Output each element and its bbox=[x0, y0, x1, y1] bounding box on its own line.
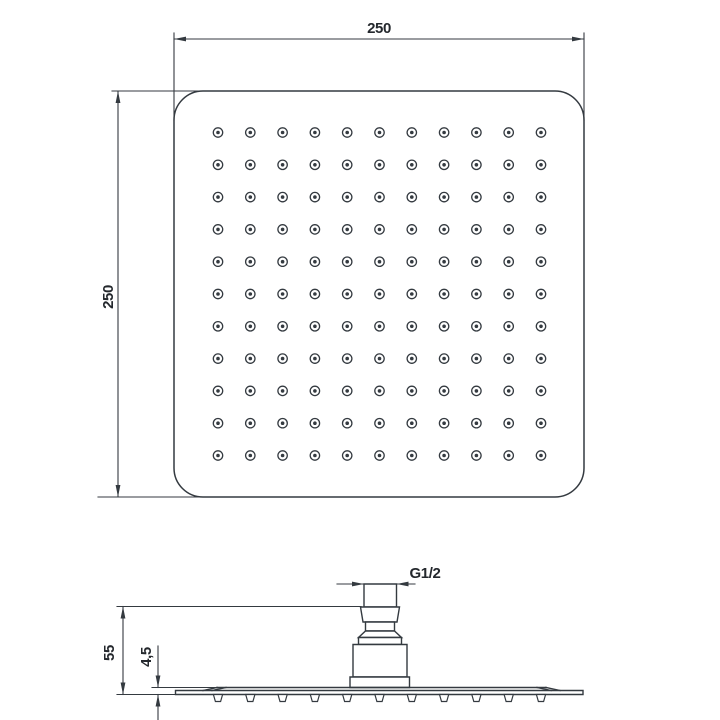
nozzle bbox=[343, 128, 352, 137]
dim-label-thickness: 4,5 bbox=[138, 647, 155, 667]
nozzle bbox=[343, 419, 352, 428]
nozzle-dot bbox=[216, 325, 220, 329]
nozzle bbox=[246, 160, 255, 169]
nozzle-dot bbox=[216, 454, 220, 458]
nozzle-dot bbox=[410, 260, 414, 264]
nozzle-dot bbox=[475, 389, 479, 393]
arrowhead-top bbox=[116, 91, 121, 103]
nozzle bbox=[278, 225, 287, 234]
nozzle-dot bbox=[378, 421, 382, 425]
nozzle bbox=[213, 354, 222, 363]
nozzle-dot bbox=[475, 357, 479, 361]
nozzle-dot bbox=[345, 357, 349, 361]
arrowhead-top bbox=[121, 607, 126, 619]
nozzle bbox=[407, 451, 416, 460]
nozzle bbox=[213, 160, 222, 169]
nozzle bbox=[343, 225, 352, 234]
nozzle bbox=[472, 354, 481, 363]
nozzle-dot bbox=[249, 260, 253, 264]
nozzle-dot bbox=[410, 357, 414, 361]
arrowhead-bottom bbox=[116, 485, 121, 497]
nozzle-dot bbox=[507, 163, 511, 167]
nozzle-dot bbox=[442, 421, 446, 425]
nozzle bbox=[504, 257, 513, 266]
nozzle-dot bbox=[249, 195, 253, 199]
nozzle bbox=[536, 160, 545, 169]
nozzle-dot bbox=[313, 131, 317, 135]
nozzle-dot bbox=[507, 325, 511, 329]
nozzle bbox=[472, 451, 481, 460]
side-nozzle bbox=[472, 695, 481, 702]
nozzle bbox=[375, 354, 384, 363]
nozzle-dot bbox=[345, 292, 349, 296]
nozzle-dot bbox=[475, 228, 479, 232]
nozzle bbox=[375, 160, 384, 169]
arrowhead-right-pointing bbox=[352, 582, 364, 587]
nozzle bbox=[504, 128, 513, 137]
drawing-svg: 250 250 bbox=[0, 0, 720, 720]
nozzle-dot bbox=[475, 260, 479, 264]
nozzle-dot bbox=[313, 357, 317, 361]
nozzle-dot bbox=[378, 389, 382, 393]
nozzle-dot bbox=[442, 292, 446, 296]
nozzle-dot bbox=[378, 325, 382, 329]
nozzle-dot bbox=[345, 228, 349, 232]
side-nozzle bbox=[407, 695, 416, 702]
nozzle-dot bbox=[313, 163, 317, 167]
nozzle bbox=[407, 225, 416, 234]
nozzle bbox=[343, 289, 352, 298]
nozzle bbox=[343, 386, 352, 395]
nozzle-dot bbox=[507, 454, 511, 458]
arrowhead-up bbox=[156, 695, 161, 707]
nozzle-dot bbox=[281, 292, 285, 296]
nozzle bbox=[310, 419, 319, 428]
nozzle-dot bbox=[216, 421, 220, 425]
nozzle bbox=[504, 386, 513, 395]
nozzle bbox=[536, 451, 545, 460]
nozzle bbox=[343, 257, 352, 266]
nozzle bbox=[213, 451, 222, 460]
nozzle-dot bbox=[378, 131, 382, 135]
nozzle-dot bbox=[313, 454, 317, 458]
nozzle-dot bbox=[410, 292, 414, 296]
nozzle-dot bbox=[442, 325, 446, 329]
nozzle bbox=[407, 160, 416, 169]
nozzle-dot bbox=[475, 292, 479, 296]
nozzle-dot bbox=[216, 195, 220, 199]
nozzle bbox=[278, 192, 287, 201]
nozzle-dot bbox=[442, 131, 446, 135]
nozzle bbox=[504, 225, 513, 234]
nozzle-dot bbox=[507, 260, 511, 264]
nozzle-dot bbox=[216, 357, 220, 361]
nozzle bbox=[343, 192, 352, 201]
nozzle-dot bbox=[216, 228, 220, 232]
nozzle bbox=[536, 419, 545, 428]
arrowhead-left-pointing bbox=[397, 582, 409, 587]
nozzle bbox=[278, 289, 287, 298]
nozzle-dot bbox=[216, 260, 220, 264]
side-nozzle bbox=[246, 695, 255, 702]
nozzle-dot bbox=[249, 357, 253, 361]
nozzle bbox=[407, 192, 416, 201]
nozzle-dot bbox=[313, 260, 317, 264]
nozzle-dot bbox=[475, 454, 479, 458]
dim-label-side-height: 55 bbox=[101, 645, 118, 661]
nozzle-dot bbox=[281, 131, 285, 135]
nozzle-dot bbox=[345, 389, 349, 393]
nozzle-dot bbox=[313, 228, 317, 232]
nozzle bbox=[246, 289, 255, 298]
nozzle-dot bbox=[539, 228, 543, 232]
nozzle bbox=[278, 451, 287, 460]
connector-base bbox=[350, 677, 410, 688]
connector-neck bbox=[366, 622, 395, 631]
connector-body bbox=[353, 645, 407, 678]
nozzle bbox=[407, 322, 416, 331]
nozzle bbox=[375, 386, 384, 395]
nozzle-dot bbox=[249, 454, 253, 458]
nozzle-dot bbox=[507, 421, 511, 425]
nozzle bbox=[246, 386, 255, 395]
nozzle bbox=[536, 386, 545, 395]
nozzle-dot bbox=[249, 131, 253, 135]
nozzle-dot bbox=[378, 292, 382, 296]
nozzle bbox=[343, 160, 352, 169]
nozzle-dot bbox=[378, 163, 382, 167]
nozzle-dot bbox=[410, 454, 414, 458]
side-nozzle bbox=[504, 695, 513, 702]
nozzle-dot bbox=[410, 163, 414, 167]
top-view: 250 250 bbox=[98, 20, 584, 497]
nozzle-dot bbox=[539, 260, 543, 264]
nozzle-dot bbox=[507, 131, 511, 135]
nozzle-dot bbox=[442, 357, 446, 361]
nozzle bbox=[310, 192, 319, 201]
nozzle-dot bbox=[378, 454, 382, 458]
nozzle bbox=[439, 225, 448, 234]
arrowhead-right bbox=[572, 37, 584, 42]
nozzle bbox=[213, 322, 222, 331]
nozzle-dot bbox=[345, 260, 349, 264]
nozzle bbox=[472, 386, 481, 395]
nozzle-dot bbox=[345, 421, 349, 425]
nozzle bbox=[407, 386, 416, 395]
nozzle bbox=[310, 451, 319, 460]
nozzle bbox=[504, 354, 513, 363]
nozzle-dot bbox=[378, 228, 382, 232]
connector bbox=[350, 584, 410, 688]
nozzle bbox=[310, 322, 319, 331]
nozzle bbox=[439, 160, 448, 169]
nozzle bbox=[375, 322, 384, 331]
nozzle-dot bbox=[281, 357, 285, 361]
nozzle bbox=[407, 128, 416, 137]
nozzle bbox=[213, 225, 222, 234]
nozzle bbox=[246, 225, 255, 234]
nozzle bbox=[536, 289, 545, 298]
nozzle bbox=[504, 160, 513, 169]
nozzle bbox=[472, 225, 481, 234]
side-nozzle bbox=[375, 695, 384, 702]
nozzle-dot bbox=[313, 292, 317, 296]
nozzle-dot bbox=[410, 325, 414, 329]
nozzle-dot bbox=[539, 163, 543, 167]
nozzle bbox=[343, 322, 352, 331]
nozzle bbox=[375, 451, 384, 460]
nozzle bbox=[310, 386, 319, 395]
nozzle-dot bbox=[281, 454, 285, 458]
nozzle bbox=[246, 128, 255, 137]
nozzle bbox=[343, 451, 352, 460]
side-nozzle bbox=[213, 695, 222, 702]
nozzle-dot bbox=[539, 421, 543, 425]
connector-cone bbox=[361, 607, 400, 622]
side-view: 55 4,5 G1/2 bbox=[101, 565, 583, 720]
nozzle bbox=[439, 128, 448, 137]
nozzle-dot bbox=[475, 163, 479, 167]
nozzle-dot bbox=[281, 163, 285, 167]
side-nozzle bbox=[343, 695, 352, 702]
nozzle-dot bbox=[249, 325, 253, 329]
nozzle bbox=[278, 257, 287, 266]
nozzle bbox=[536, 257, 545, 266]
nozzle bbox=[278, 322, 287, 331]
nozzle bbox=[504, 419, 513, 428]
nozzle-dot bbox=[539, 357, 543, 361]
nozzle-dot bbox=[410, 421, 414, 425]
nozzle bbox=[278, 354, 287, 363]
nozzle bbox=[536, 354, 545, 363]
nozzle-dot bbox=[281, 228, 285, 232]
nozzle-dot bbox=[345, 131, 349, 135]
nozzle bbox=[213, 289, 222, 298]
nozzle-dot bbox=[216, 131, 220, 135]
nozzle bbox=[213, 386, 222, 395]
nozzle-dot bbox=[539, 292, 543, 296]
nozzle-dot bbox=[442, 195, 446, 199]
nozzle bbox=[310, 128, 319, 137]
nozzle bbox=[536, 128, 545, 137]
nozzle bbox=[439, 354, 448, 363]
nozzle-dot bbox=[281, 325, 285, 329]
nozzle bbox=[246, 192, 255, 201]
dim-label-height: 250 bbox=[100, 285, 117, 309]
arrowhead-left bbox=[174, 37, 186, 42]
nozzle bbox=[472, 128, 481, 137]
nozzle bbox=[310, 257, 319, 266]
nozzle-dot bbox=[281, 389, 285, 393]
nozzle-dot bbox=[378, 260, 382, 264]
nozzle bbox=[407, 289, 416, 298]
side-nozzle-row bbox=[213, 695, 545, 702]
nozzle bbox=[310, 289, 319, 298]
nozzle-dot bbox=[410, 389, 414, 393]
nozzle-dot bbox=[281, 195, 285, 199]
side-nozzle bbox=[440, 695, 449, 702]
nozzle-dot bbox=[475, 195, 479, 199]
nozzle-dot bbox=[313, 389, 317, 393]
nozzle bbox=[439, 257, 448, 266]
connector-flare bbox=[359, 631, 402, 638]
nozzle bbox=[407, 419, 416, 428]
nozzle bbox=[439, 289, 448, 298]
nozzle-dot bbox=[378, 195, 382, 199]
nozzle bbox=[472, 257, 481, 266]
plate bbox=[176, 688, 584, 695]
nozzle bbox=[375, 128, 384, 137]
thread-pipe bbox=[364, 584, 397, 607]
nozzle bbox=[246, 451, 255, 460]
nozzle bbox=[246, 257, 255, 266]
nozzle-dot bbox=[442, 454, 446, 458]
side-nozzle bbox=[310, 695, 319, 702]
nozzle bbox=[246, 322, 255, 331]
nozzle bbox=[407, 257, 416, 266]
nozzle bbox=[310, 160, 319, 169]
nozzle bbox=[310, 354, 319, 363]
nozzle bbox=[472, 322, 481, 331]
nozzle-dot bbox=[249, 228, 253, 232]
arrowhead-down bbox=[156, 676, 161, 688]
nozzle bbox=[504, 192, 513, 201]
nozzle bbox=[278, 128, 287, 137]
nozzle bbox=[213, 128, 222, 137]
dimension-thread: G1/2 bbox=[337, 565, 441, 586]
nozzle-dot bbox=[345, 454, 349, 458]
nozzle-dot bbox=[442, 163, 446, 167]
nozzle bbox=[246, 354, 255, 363]
nozzle-dot bbox=[539, 325, 543, 329]
nozzle-dot bbox=[345, 163, 349, 167]
nozzle bbox=[343, 354, 352, 363]
nozzle-dot bbox=[345, 325, 349, 329]
nozzle-dot bbox=[539, 195, 543, 199]
nozzle bbox=[375, 225, 384, 234]
nozzle-dot bbox=[281, 421, 285, 425]
nozzle bbox=[504, 451, 513, 460]
nozzle-dot bbox=[507, 195, 511, 199]
arrowhead-bottom bbox=[121, 683, 126, 695]
nozzle-dot bbox=[281, 260, 285, 264]
nozzle bbox=[504, 322, 513, 331]
nozzle-dot bbox=[539, 389, 543, 393]
nozzle-dot bbox=[378, 357, 382, 361]
nozzle bbox=[472, 160, 481, 169]
nozzle-dot bbox=[539, 131, 543, 135]
nozzle bbox=[439, 419, 448, 428]
nozzle bbox=[439, 386, 448, 395]
nozzle-dot bbox=[249, 389, 253, 393]
side-nozzle bbox=[278, 695, 287, 702]
nozzle bbox=[439, 192, 448, 201]
nozzle-dot bbox=[475, 131, 479, 135]
nozzle bbox=[375, 192, 384, 201]
nozzle bbox=[407, 354, 416, 363]
nozzle bbox=[439, 322, 448, 331]
nozzle bbox=[246, 419, 255, 428]
nozzle bbox=[278, 160, 287, 169]
nozzle bbox=[213, 419, 222, 428]
nozzle-dot bbox=[345, 195, 349, 199]
nozzle bbox=[310, 225, 319, 234]
nozzle-dot bbox=[313, 421, 317, 425]
nozzle-dot bbox=[249, 163, 253, 167]
nozzle bbox=[278, 386, 287, 395]
dimension-plate-thickness: 4,5 bbox=[138, 646, 216, 720]
nozzle bbox=[439, 451, 448, 460]
nozzle-dot bbox=[507, 292, 511, 296]
nozzle-dot bbox=[249, 292, 253, 296]
nozzle bbox=[472, 192, 481, 201]
nozzle-dot bbox=[410, 195, 414, 199]
nozzle-dot bbox=[507, 389, 511, 393]
nozzle bbox=[278, 419, 287, 428]
nozzle bbox=[536, 322, 545, 331]
nozzle bbox=[375, 257, 384, 266]
nozzle bbox=[213, 257, 222, 266]
nozzle-dot bbox=[442, 389, 446, 393]
nozzle bbox=[213, 192, 222, 201]
nozzle bbox=[472, 419, 481, 428]
nozzle bbox=[472, 289, 481, 298]
nozzle-dot bbox=[216, 389, 220, 393]
nozzle-dot bbox=[475, 421, 479, 425]
nozzle bbox=[375, 419, 384, 428]
nozzle-dot bbox=[507, 357, 511, 361]
nozzle-dot bbox=[475, 325, 479, 329]
nozzle-dot bbox=[442, 260, 446, 264]
nozzle-dot bbox=[410, 228, 414, 232]
nozzle-dot bbox=[249, 421, 253, 425]
nozzle-dot bbox=[539, 454, 543, 458]
side-nozzle bbox=[536, 695, 545, 702]
shower-head-technical-drawing: 250 250 bbox=[0, 0, 720, 720]
nozzle-dot bbox=[507, 228, 511, 232]
nozzle-dot bbox=[216, 292, 220, 296]
connector-collar bbox=[359, 638, 402, 645]
nozzle-dot bbox=[216, 163, 220, 167]
dim-label-thread: G1/2 bbox=[410, 565, 441, 582]
nozzle bbox=[536, 225, 545, 234]
nozzle-dot bbox=[313, 195, 317, 199]
nozzle bbox=[375, 289, 384, 298]
nozzle-dot bbox=[410, 131, 414, 135]
nozzle-dot bbox=[313, 325, 317, 329]
dim-label-width: 250 bbox=[367, 20, 391, 37]
nozzle-dot bbox=[442, 228, 446, 232]
nozzle bbox=[536, 192, 545, 201]
nozzle bbox=[504, 289, 513, 298]
